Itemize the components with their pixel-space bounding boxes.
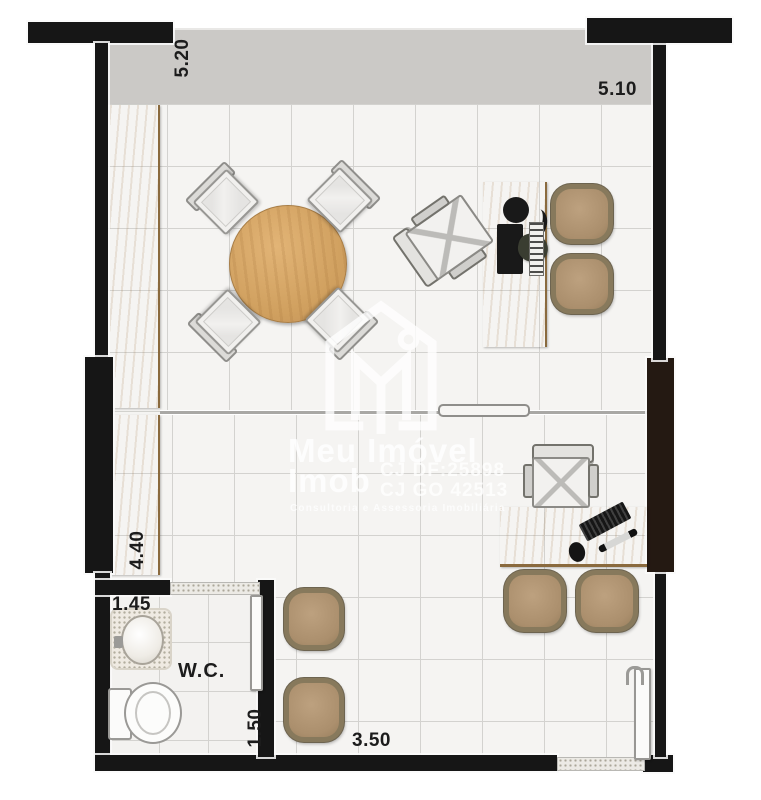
dim-wc-width: 1.45 bbox=[112, 594, 151, 616]
sink-basin bbox=[121, 615, 164, 665]
dim-top-right: 5.10 bbox=[598, 79, 637, 101]
guest-chair bbox=[284, 678, 344, 742]
dim-top-left: 5.20 bbox=[172, 30, 194, 86]
wall-right-pillar bbox=[647, 358, 674, 572]
wall-right-lower bbox=[655, 570, 666, 757]
guest-chair bbox=[551, 254, 613, 314]
wall-top-right bbox=[587, 18, 732, 43]
entry-door-handle bbox=[626, 666, 644, 685]
faucet-icon bbox=[114, 636, 123, 648]
watermark-brand-line2: Imob bbox=[288, 464, 371, 497]
guest-chair bbox=[576, 570, 638, 632]
chair-frame bbox=[551, 184, 613, 244]
house-m-logo bbox=[322, 298, 440, 434]
wall-counter-upper bbox=[110, 105, 160, 408]
dim-bottom: 3.50 bbox=[352, 730, 391, 752]
wall-wc-top bbox=[95, 580, 170, 595]
chair-frame bbox=[551, 254, 613, 314]
floor-plan: 5.20 5.10 4.40 1.45 1.50 3.50 W.C. Meu I… bbox=[0, 0, 761, 800]
watermark-registration-1: CJ DF:25898 bbox=[380, 461, 505, 480]
wall-bottom bbox=[95, 755, 557, 771]
wall-left-upper bbox=[95, 43, 108, 360]
wc-door-leaf bbox=[250, 595, 263, 691]
chair-seat bbox=[556, 189, 608, 239]
wall-right-upper bbox=[653, 43, 666, 360]
wall-wc-left bbox=[95, 573, 110, 771]
guest-chair bbox=[504, 570, 566, 632]
wc-room-label: W.C. bbox=[178, 660, 225, 683]
chair-frame bbox=[284, 678, 344, 742]
guest-chair bbox=[284, 588, 344, 650]
watermark-tagline: Consultoria e Assessoria Imobiliária bbox=[290, 503, 506, 514]
wall-top-left bbox=[28, 22, 173, 43]
chair-frame bbox=[284, 588, 344, 650]
sliding-partition-door bbox=[438, 404, 530, 417]
chair-seat bbox=[532, 457, 590, 508]
chair-frame bbox=[504, 570, 566, 632]
chair-seat bbox=[289, 683, 339, 737]
watermark-registration-2: CJ GO 42513 bbox=[380, 481, 508, 500]
dim-left: 4.40 bbox=[127, 522, 149, 578]
chair-seat bbox=[509, 575, 561, 627]
entry-door-threshold bbox=[557, 757, 645, 771]
chair-frame bbox=[576, 570, 638, 632]
guest-chair bbox=[551, 184, 613, 244]
wall-left-pillar bbox=[85, 357, 113, 573]
office-chair bbox=[529, 444, 593, 508]
chair-seat bbox=[556, 259, 608, 309]
toilet-bowl bbox=[124, 682, 182, 744]
chair-seat bbox=[581, 575, 633, 627]
wc-door-threshold bbox=[170, 582, 260, 595]
chair-seat bbox=[289, 593, 339, 645]
dim-wc-depth: 1.50 bbox=[245, 700, 267, 756]
keyboard-icon bbox=[529, 222, 544, 276]
